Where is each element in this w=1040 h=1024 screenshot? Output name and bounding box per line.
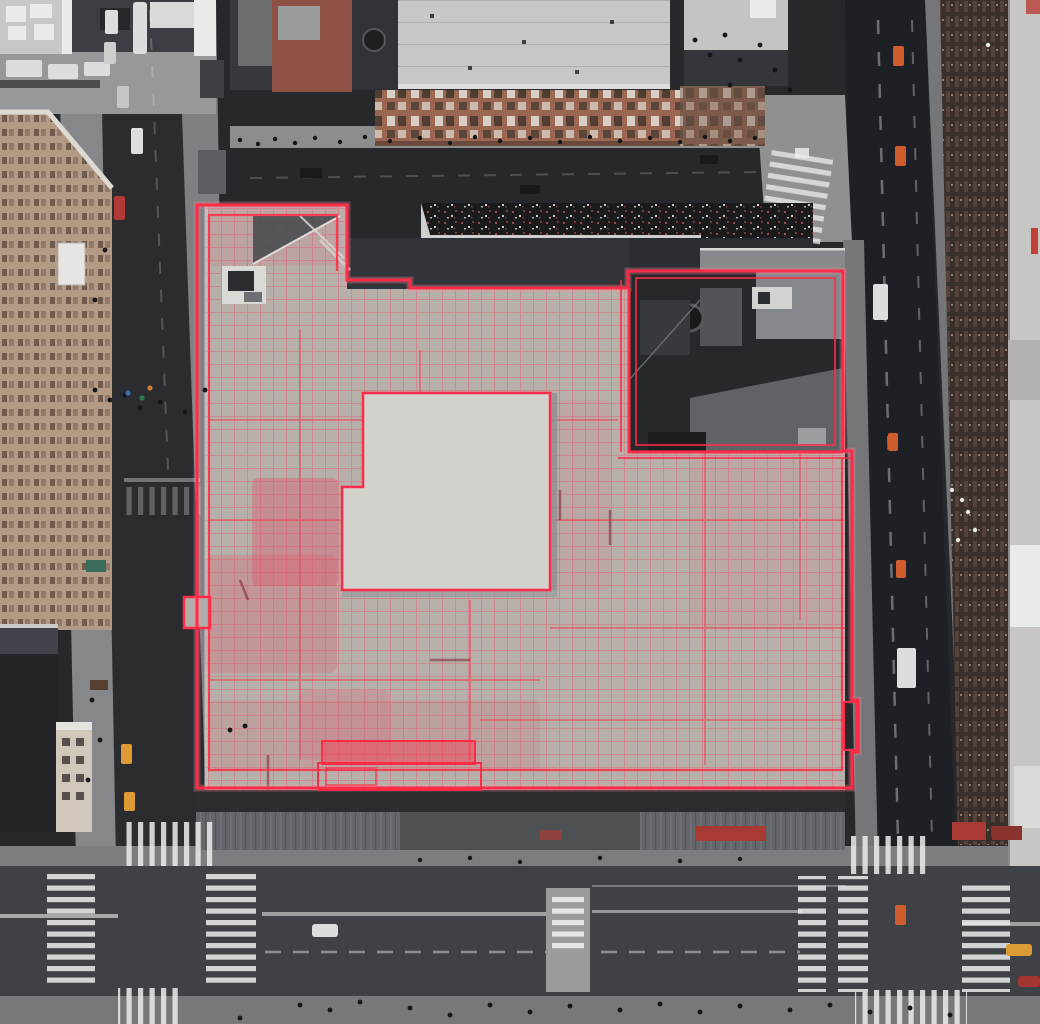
parapet-bright-2 — [194, 0, 216, 56]
inset-panel — [700, 288, 742, 346]
crosswalk-ladder-2 — [206, 868, 256, 986]
parapet-sliver — [700, 248, 845, 270]
red-banner-vert — [1031, 228, 1038, 254]
dark-roof-ne — [684, 50, 788, 86]
van-white-3 — [117, 86, 129, 108]
aerial-photo-viewport — [0, 0, 1040, 1024]
brick-tower-roof — [278, 6, 320, 40]
parapet-sliver-edge — [700, 248, 845, 251]
crosswalk-ladder-3 — [798, 876, 826, 992]
vendor-stall-green — [86, 560, 106, 572]
roof-left-parapet — [204, 204, 208, 788]
tan-building-windows — [0, 110, 112, 630]
roof-bulkhead-vent — [244, 292, 262, 302]
inset-bright-unit — [798, 428, 826, 446]
facade-base — [375, 141, 680, 146]
crosswalk-avenue-top — [845, 836, 927, 874]
dock-shadow — [0, 80, 100, 88]
crosswalk-left-top — [124, 822, 216, 866]
roof-bulkhead-dark — [228, 271, 254, 291]
dark-building-sw-edge — [0, 624, 58, 628]
car-white-1 — [312, 924, 338, 937]
van-white-2 — [104, 42, 116, 64]
taxi-av-2 — [895, 146, 906, 166]
car-red-bottom — [1018, 976, 1040, 987]
inset-white-box-slot — [758, 292, 770, 304]
stop-line — [124, 478, 200, 482]
van-white-4 — [131, 128, 143, 154]
green-roof-speckle — [421, 203, 813, 238]
truck-white-av — [897, 648, 916, 688]
crosswalk-ladder-1 — [47, 868, 95, 986]
crosswalk-ladder-4 — [838, 876, 868, 992]
big-roof-parapet — [398, 84, 670, 89]
tan-small-roofline — [56, 722, 92, 730]
vendor-stall-brown — [90, 680, 108, 690]
white-structure-1 — [1010, 545, 1040, 627]
green-roof-edge — [421, 235, 701, 238]
inset-dark-shed — [640, 300, 690, 355]
white-structure-2 — [1014, 766, 1040, 828]
big-roof-seams — [398, 0, 670, 88]
car-dark-3 — [700, 155, 718, 164]
brick-dark-windows — [680, 86, 765, 146]
car-dark-1 — [300, 168, 322, 178]
car-dark-2 — [520, 185, 540, 194]
billboard-white — [58, 243, 85, 285]
van-white-1 — [105, 10, 118, 34]
taxi-av-3 — [888, 433, 898, 451]
red-awning-2 — [992, 826, 1022, 840]
taxi-av-1 — [893, 46, 904, 66]
crosswalk-worn — [122, 487, 202, 515]
south-shadow-band — [196, 790, 845, 814]
bottom-hatch-box — [322, 741, 475, 764]
taxi-av-4 — [896, 560, 906, 578]
block-south-face — [196, 790, 845, 850]
water-tower — [363, 29, 385, 51]
red-corner — [1026, 0, 1040, 14]
dark-building-sw — [0, 628, 58, 832]
inset-dark-parcel — [629, 271, 843, 452]
stall-gray — [198, 150, 226, 194]
crosswalk-left-bottom — [118, 988, 182, 1024]
trailer-white — [873, 284, 888, 320]
tan-small-building — [56, 722, 92, 832]
parapet-bright — [62, 0, 72, 54]
raised-roof — [342, 393, 550, 590]
stall-dark — [200, 60, 224, 98]
white-panel — [150, 2, 194, 28]
dark-building-sw-top — [0, 628, 58, 654]
south-wall-dark-seg — [400, 812, 640, 850]
taxi-bottom-right — [1006, 944, 1032, 956]
crosswalk-ladder-5 — [962, 880, 1010, 992]
red-awning-1 — [952, 822, 986, 840]
gray-patch-right — [1008, 340, 1040, 400]
red-banner-small — [540, 830, 562, 840]
truck-red — [114, 196, 125, 220]
taxi-2 — [124, 792, 135, 811]
median-crosswalk — [552, 893, 584, 953]
bus-white — [133, 2, 147, 54]
red-banner-wall — [695, 826, 765, 841]
inset-dark-unit — [648, 432, 706, 452]
white-unit-ne — [750, 0, 776, 18]
taxi-1 — [121, 744, 132, 764]
bottom-street — [0, 866, 1040, 996]
taxi-av-5 — [895, 905, 906, 925]
alley-dark — [670, 0, 684, 86]
